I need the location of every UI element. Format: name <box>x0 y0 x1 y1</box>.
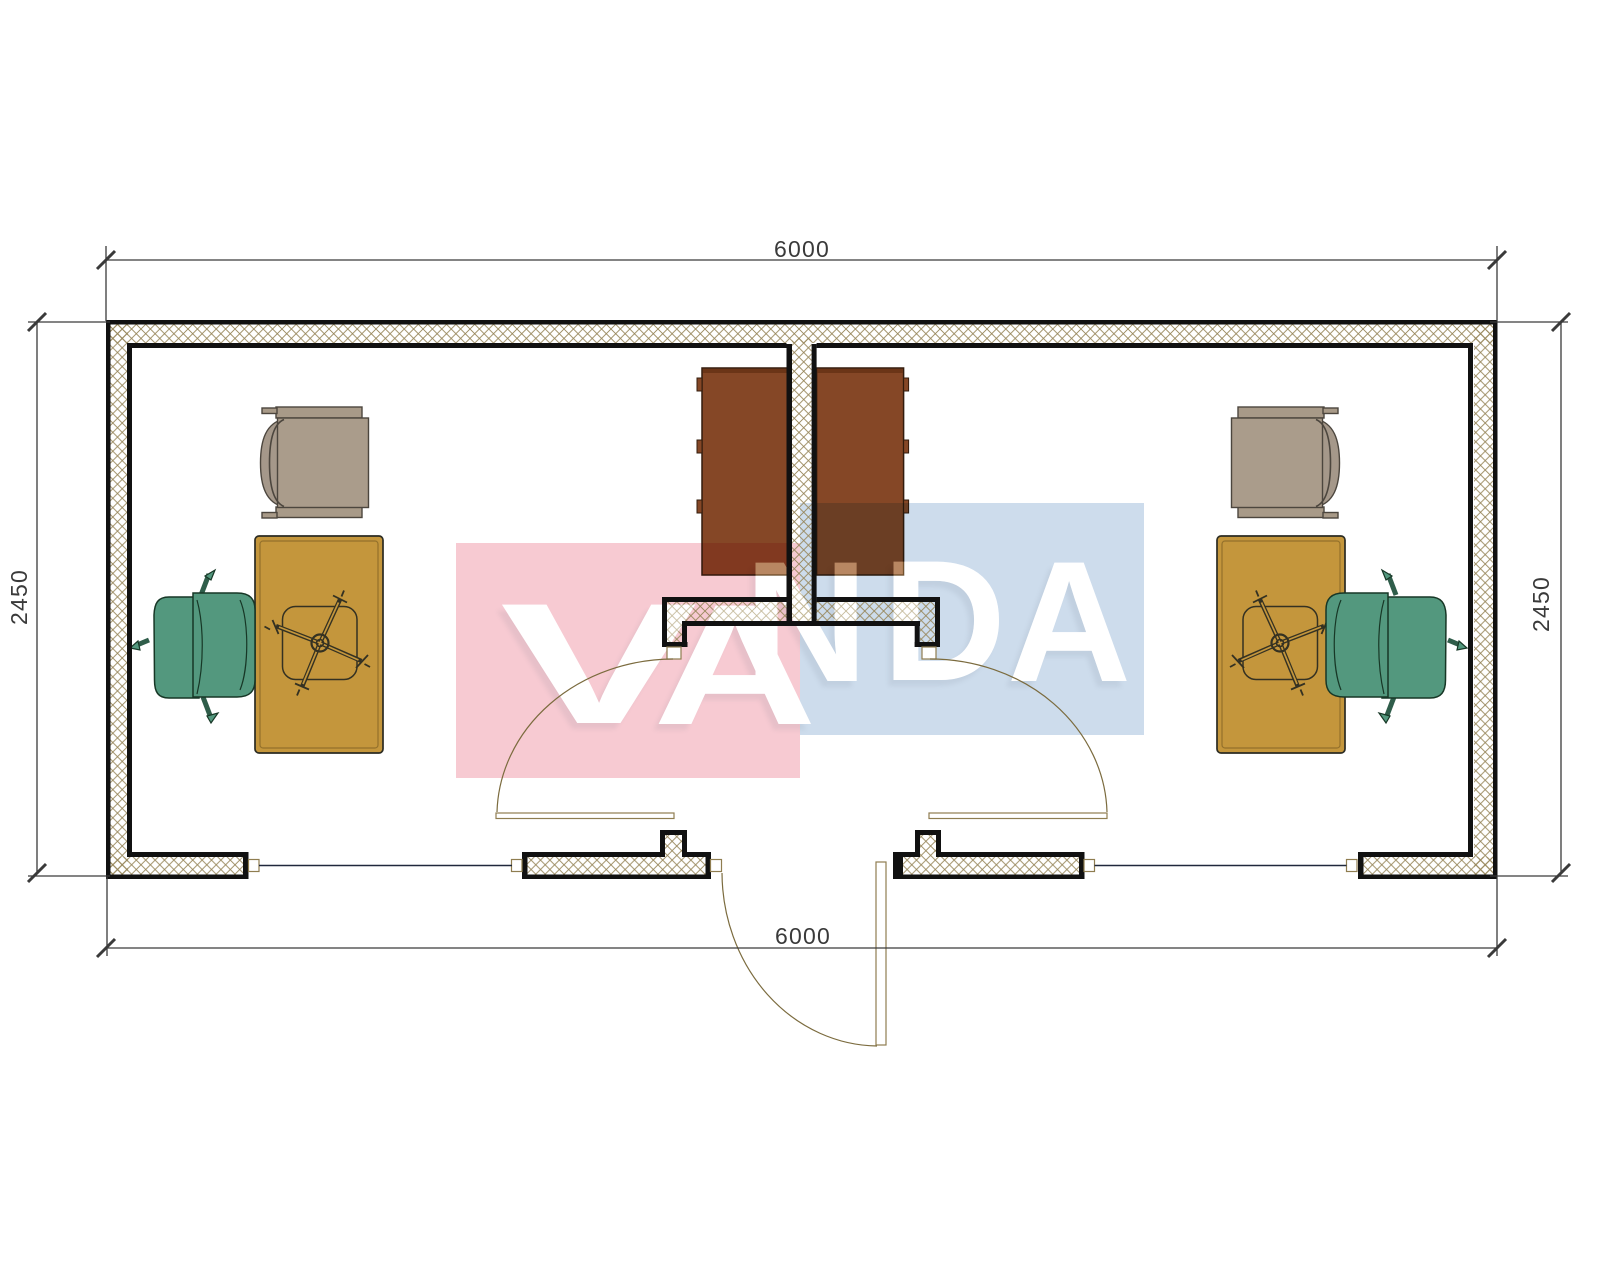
svg-text:6000: 6000 <box>775 923 831 949</box>
svg-text:2450: 2450 <box>1528 576 1554 632</box>
svg-text:2450: 2450 <box>6 569 32 625</box>
svg-text:6000: 6000 <box>774 236 830 262</box>
